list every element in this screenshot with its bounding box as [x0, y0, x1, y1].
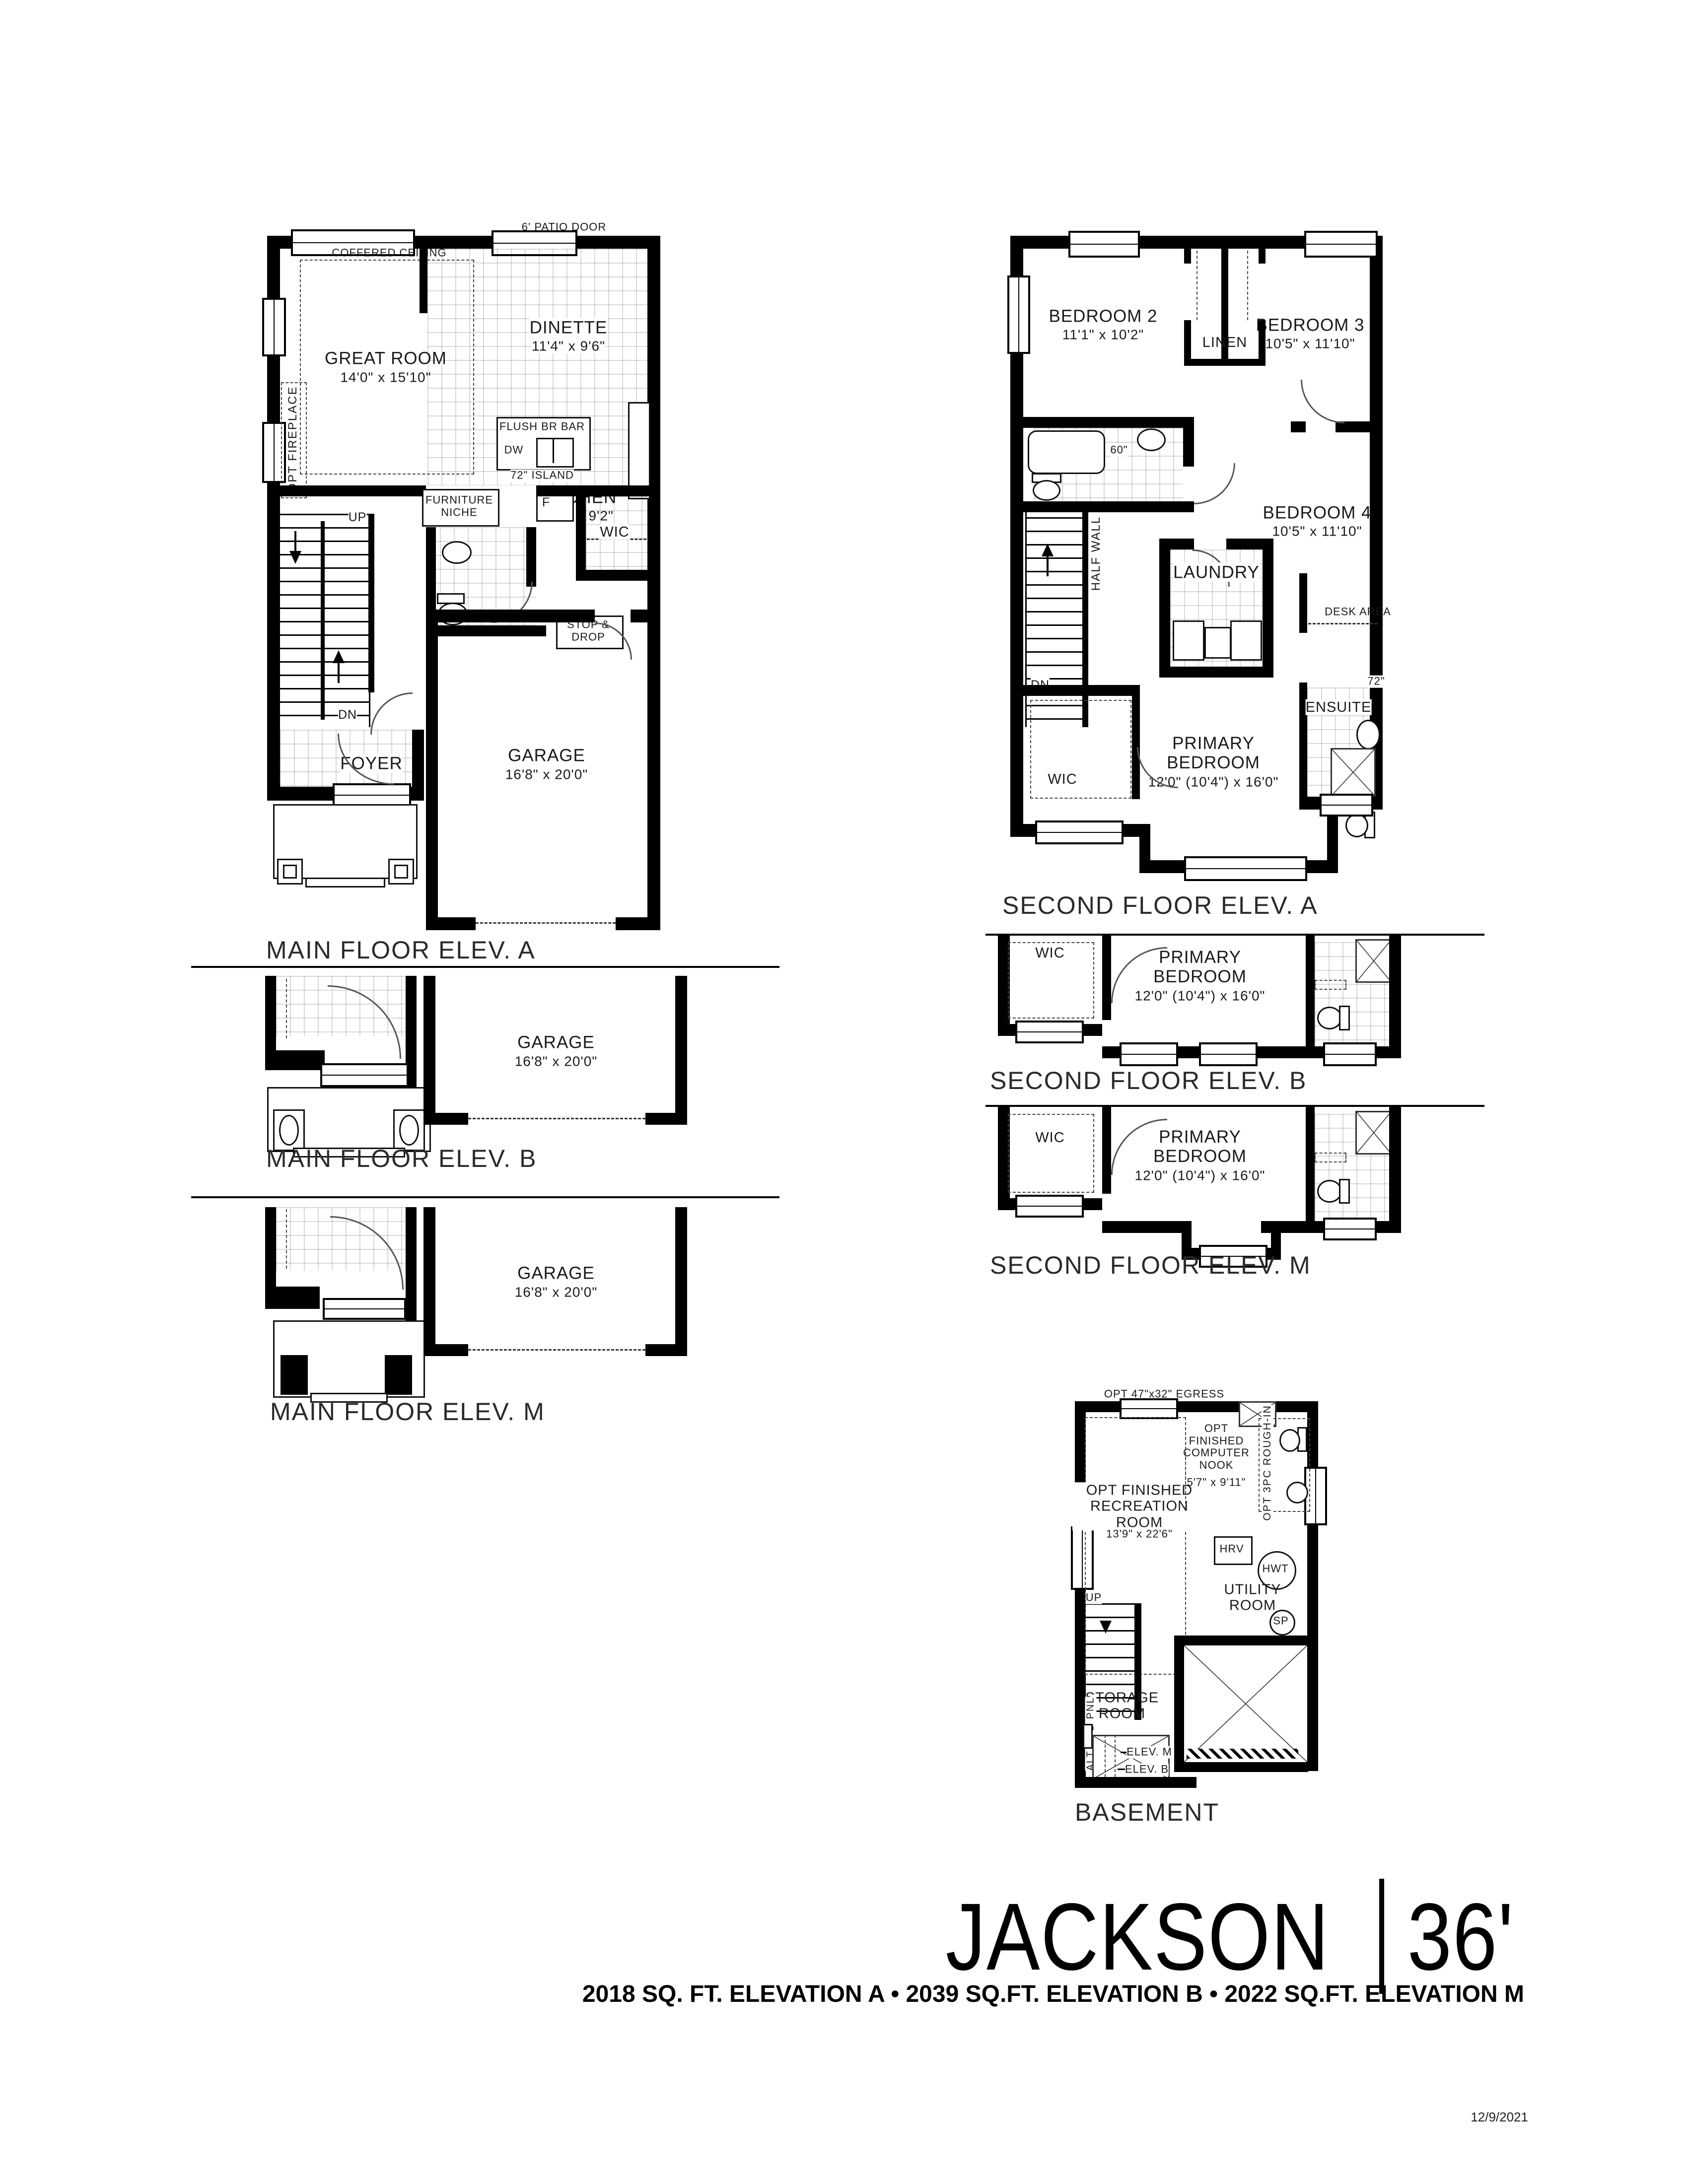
wall — [265, 1287, 320, 1309]
front-door — [320, 1063, 409, 1087]
opt-line — [286, 979, 287, 1038]
vanity-60-label: 60" — [1110, 444, 1127, 457]
wall — [536, 485, 660, 496]
garage-slab — [1184, 1645, 1307, 1762]
floor-plan-sheet: 6' PATIO DOOR COFFERED CEILING GREAT ROO… — [0, 0, 1688, 2184]
wall — [267, 485, 426, 496]
wall — [616, 917, 660, 930]
shower — [1355, 1111, 1392, 1155]
sheet-date: 12/9/2021 — [1471, 2110, 1528, 2125]
wic-label: WIC — [1035, 945, 1064, 961]
wall — [1306, 1107, 1315, 1221]
bedroom4-label: BEDROOM 4 — [1263, 503, 1371, 522]
wic-outline — [1008, 1114, 1094, 1193]
toilet-tank — [1339, 1179, 1350, 1204]
wall — [426, 625, 546, 636]
wall — [1159, 539, 1170, 678]
porch-pillar-inner — [283, 865, 297, 879]
porch-slab-line — [1115, 1735, 1116, 1777]
porch-pillar-inner — [399, 1115, 419, 1146]
sqft-subtitle: 2018 SQ. FT. ELEVATION A • 2039 SQ.FT. E… — [582, 1980, 1524, 2008]
wall — [1259, 249, 1266, 264]
laundry-label: LAUNDRY — [1173, 562, 1260, 582]
bathtub — [1028, 430, 1105, 474]
island-sink-divider — [553, 439, 554, 463]
wall — [423, 1207, 435, 1356]
dinette-dims: 11'4" x 9'6" — [532, 338, 605, 353]
door-swing — [1137, 747, 1178, 788]
wall — [265, 976, 276, 1050]
caption-second-floor-b: SECOND FLOOR ELEV. B — [990, 1066, 1307, 1095]
window — [1320, 794, 1373, 817]
front-door — [323, 1298, 406, 1320]
wic-label: WIC — [1048, 771, 1077, 787]
desk-line — [1308, 623, 1378, 624]
model-name: JACKSON — [946, 1882, 1330, 1991]
wall — [1023, 685, 1140, 696]
wall — [1174, 1762, 1308, 1772]
wall — [1271, 1221, 1281, 1250]
caption-main-floor-m: MAIN FLOOR ELEV. M — [270, 1397, 545, 1426]
window — [262, 298, 286, 356]
wall — [423, 1113, 468, 1125]
dryer — [1230, 620, 1262, 661]
dn-label: DN — [338, 708, 357, 722]
garage-label: GARAGE — [517, 1032, 595, 1052]
elev-b-label: ELEV. B — [1125, 1764, 1169, 1776]
flush-bar-label: FLUSH BR BAR — [499, 421, 585, 433]
wall — [1306, 936, 1315, 1046]
powder-sink — [442, 541, 472, 564]
porch-slab-line — [1105, 1735, 1106, 1777]
wall — [426, 917, 476, 930]
wall — [1389, 936, 1401, 1058]
ensuite-label: ENSUITE — [1306, 699, 1372, 715]
wall — [368, 514, 374, 692]
stoop-pillar — [385, 1355, 412, 1395]
window — [1015, 1021, 1084, 1043]
plan-basement: OPT 47"x32" EGRESS OPT FINISHED RECREATI… — [1065, 1387, 1323, 1804]
rec-room-label: OPT FINISHED RECREATION ROOM — [1072, 1482, 1206, 1530]
dw-label: DW — [504, 444, 524, 457]
wall — [1159, 667, 1273, 678]
caption-main-floor-a: MAIN FLOOR ELEV. A — [266, 936, 536, 964]
window — [1035, 820, 1124, 844]
garage-dims: 16'8" x 20'0" — [515, 1053, 598, 1069]
cut-line — [191, 966, 779, 968]
wall — [526, 527, 536, 587]
arrow-stem — [1047, 556, 1049, 576]
vanity-outline — [1315, 980, 1346, 990]
toilet — [1345, 814, 1368, 837]
porch-pillar-inner — [279, 1115, 299, 1146]
linen-label: LINEN — [1202, 335, 1247, 350]
door-swing — [370, 692, 413, 735]
opt-fireplace-label: OPT FIREPLACE — [286, 386, 300, 493]
wall — [426, 610, 438, 930]
plan-second-floor-a: BEDROOM 2 11'1" x 10'2" BEDROOM 3 10'5" … — [988, 226, 1405, 911]
wic-label: WIC — [1035, 1130, 1064, 1146]
porch-step — [305, 878, 385, 887]
plan-second-floor-m: WIC PRIMARY BEDROOM 12'0" (10'4") x 16'0… — [985, 1103, 1487, 1257]
wall — [426, 610, 595, 622]
garage-door — [468, 1349, 645, 1351]
window — [1199, 1042, 1258, 1066]
arrow-down — [1100, 1621, 1112, 1634]
kitchen-counter — [628, 402, 650, 499]
rec-room-dims: 13'9" x 22'6" — [1106, 1528, 1173, 1541]
wall — [1102, 936, 1111, 1020]
garage-door — [476, 922, 616, 924]
island-sink — [536, 438, 574, 468]
cut-line — [985, 934, 1484, 936]
caption-main-floor-b: MAIN FLOOR ELEV. B — [266, 1144, 537, 1173]
egress-window — [1120, 1398, 1178, 1419]
wall — [1102, 1107, 1111, 1194]
bedroom2-label: BEDROOM 2 — [1049, 306, 1157, 326]
window — [1323, 1042, 1377, 1066]
half-wall-label: HALF WALL — [1089, 516, 1103, 591]
wall — [1261, 1221, 1306, 1233]
garage-slab-hatch — [1187, 1749, 1298, 1759]
wall — [1023, 417, 1194, 428]
wall — [576, 570, 660, 581]
plan-main-floor-a: 6' PATIO DOOR COFFERED CEILING GREAT ROO… — [258, 223, 670, 968]
stair-rail — [321, 521, 325, 720]
arrow-stem — [338, 663, 340, 683]
opt-line — [286, 1209, 287, 1269]
wic-label: WIC — [600, 524, 629, 540]
toilet-tank — [1339, 1006, 1350, 1030]
wall — [645, 1113, 687, 1125]
wall — [1263, 539, 1273, 678]
garage-door — [468, 1118, 645, 1119]
bath-sink — [1137, 428, 1166, 451]
window — [1015, 1195, 1084, 1218]
wall — [1075, 1777, 1196, 1788]
wall — [265, 1207, 276, 1287]
elev-m-label: ELEV. M — [1126, 1746, 1172, 1759]
computer-nook-label: OPT FINISHED COMPUTER NOOK — [1179, 1423, 1254, 1472]
closet-rod — [1196, 251, 1197, 320]
wall — [1132, 685, 1140, 799]
arrow-up — [1042, 544, 1054, 556]
plan-main-floor-b: GARAGE 16'8" x 20'0" — [189, 963, 789, 1171]
rough-in-label: OPT 3PC ROUGH-IN — [1262, 1405, 1273, 1520]
wall — [1182, 1221, 1192, 1250]
utility-room-label: UTILITY ROOM — [1218, 1582, 1287, 1614]
bedroom4-dims: 10'5" x 11'10" — [1272, 523, 1362, 539]
cut-line — [985, 1105, 1484, 1107]
island-label: 72" ISLAND — [510, 470, 574, 482]
toilet — [1317, 1180, 1342, 1203]
cut-line — [191, 1196, 779, 1198]
vanity-72-label: 72" — [1367, 676, 1385, 688]
model-size: 36' — [1407, 1882, 1514, 1991]
wall — [1102, 1221, 1182, 1233]
fridge-label: F — [542, 495, 550, 509]
wall — [645, 1344, 687, 1356]
window — [1304, 231, 1378, 258]
wall — [1174, 1636, 1308, 1645]
washer — [1173, 620, 1204, 661]
wall — [1291, 421, 1306, 432]
toilet — [1033, 480, 1060, 501]
primary-label: PRIMARY BEDROOM — [1138, 948, 1262, 986]
caption-second-floor-m: SECOND FLOOR ELEV. M — [990, 1251, 1311, 1280]
garage-label: GARAGE — [517, 1263, 595, 1283]
door-swing — [1301, 380, 1344, 423]
hrv-label: HRV — [1219, 1543, 1244, 1556]
furniture-niche-label: FURNITURE NICHE — [420, 494, 499, 518]
wall — [1174, 1636, 1184, 1772]
caption-basement: BASEMENT — [1075, 1798, 1219, 1827]
window — [1184, 856, 1307, 881]
arrow-down — [289, 551, 301, 564]
arrow-up — [333, 650, 345, 663]
great-room-dims: 14'0" x 15'10" — [340, 369, 431, 385]
caption-second-floor-a: SECOND FLOOR ELEV. A — [1002, 891, 1318, 920]
arrow-stem — [294, 531, 296, 551]
ensuite-sink — [1356, 720, 1380, 750]
sp-label: SP — [1273, 1615, 1288, 1628]
rough-in-sink — [1286, 1482, 1308, 1503]
wall — [647, 236, 660, 930]
wall — [420, 249, 427, 313]
wall — [423, 1344, 468, 1356]
up-label: UP — [349, 510, 367, 524]
wall — [576, 496, 586, 581]
garage-dims: 16'8" x 20'0" — [515, 1284, 598, 1299]
garage-dims: 16'8" x 20'0" — [505, 766, 588, 782]
computer-nook-dims: 5'7" x 9'11" — [1187, 1477, 1246, 1489]
window — [1007, 275, 1030, 354]
toilet — [1317, 1007, 1342, 1029]
laundry-sink — [1204, 627, 1231, 659]
wall — [675, 1207, 687, 1356]
vanity-outline — [1315, 1153, 1346, 1162]
primary-dims: 12'0" (10'4") x 16'0" — [1135, 1167, 1266, 1183]
shower — [1331, 748, 1376, 797]
door-swing — [1194, 463, 1235, 504]
porch-pillar-inner — [394, 865, 408, 879]
window — [1120, 1042, 1178, 1066]
up-label: UP — [1086, 1592, 1102, 1604]
dinette-label: DINETTE — [530, 318, 608, 337]
wall — [423, 976, 435, 1125]
bedroom3-dims: 10'5" x 11'10" — [1265, 336, 1355, 351]
door-swing — [595, 622, 632, 660]
primary-label: PRIMARY BEDROOM — [1138, 1127, 1262, 1166]
closet-rod — [1247, 251, 1248, 320]
stoop-pillar — [281, 1355, 308, 1395]
wall — [1184, 359, 1266, 366]
alt-hyd-panel — [1083, 1724, 1093, 1749]
wall — [1183, 417, 1194, 467]
shower — [1355, 939, 1392, 983]
primary-dims: 12'0" (10'4") x 16'0" — [1135, 988, 1266, 1003]
front-door — [333, 783, 411, 807]
wall — [1389, 1107, 1401, 1233]
toilet — [1279, 1429, 1300, 1452]
desk-area-label: DESK AREA — [1325, 606, 1391, 618]
plan-main-floor-m: GARAGE 16'8" x 20'0" — [189, 1191, 789, 1420]
window — [1323, 1218, 1377, 1240]
wall — [265, 1050, 325, 1070]
wall — [631, 610, 660, 622]
wall — [1299, 573, 1307, 633]
hwt-label: HWT — [1262, 1563, 1288, 1575]
wall — [675, 976, 687, 1125]
garage-label: GARAGE — [508, 746, 585, 765]
wall — [1184, 249, 1191, 264]
bedroom2-dims: 11'1" x 10'2" — [1062, 327, 1144, 342]
bedroom3-label: BEDROOM 3 — [1256, 315, 1364, 335]
title-divider — [1379, 1879, 1384, 1994]
title-block: JACKSON 36' — [909, 1879, 1524, 1994]
plan-second-floor-b: WIC PRIMARY BEDROOM 12'0" (10'4") x 16'0… — [985, 932, 1487, 1071]
window — [1068, 231, 1140, 258]
wic-outline — [1030, 700, 1131, 799]
